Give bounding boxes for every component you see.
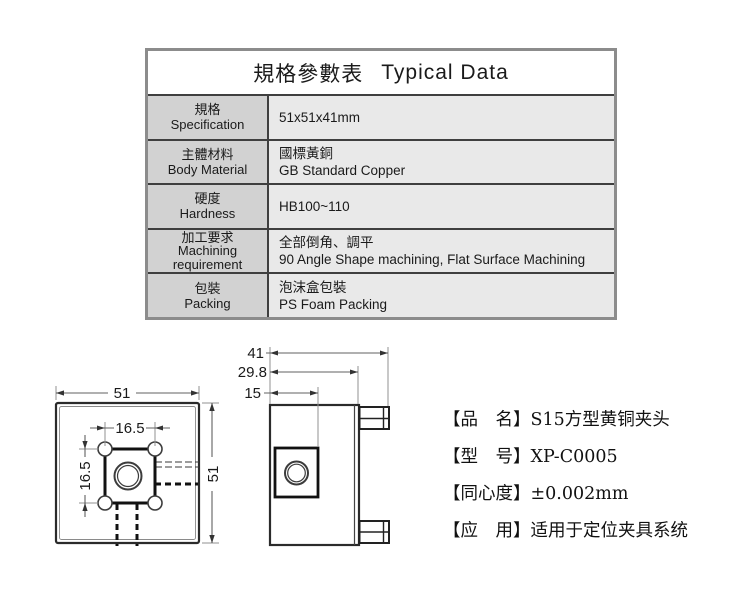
row-value: 泡沫盒包裝 PS Foam Packing bbox=[269, 274, 614, 317]
row-label: 主體材料 Body Material bbox=[148, 141, 269, 184]
row-value-line1: HB100~110 bbox=[279, 198, 614, 215]
row-label-en: Hardness bbox=[180, 206, 236, 221]
row-label-en: Packing bbox=[184, 296, 230, 311]
row-value-line2: GB Standard Copper bbox=[279, 162, 614, 179]
product-concentricity-line: 【同心度】±0.002mm bbox=[443, 480, 743, 502]
table-row-body-material: 主體材料 Body Material 國標黃銅 GB Standard Copp… bbox=[148, 141, 614, 186]
spec-table-title: 規格參數表 Typical Data bbox=[148, 51, 614, 96]
center-hole-outer bbox=[115, 463, 142, 490]
product-model-label: 【型 号】 bbox=[443, 447, 531, 467]
row-label-en: Machining requirement bbox=[154, 244, 261, 271]
front-width-dim-label: 51 bbox=[114, 385, 131, 402]
row-label-zh: 規格 bbox=[194, 102, 220, 117]
product-concentricity-value: ±0.002mm bbox=[531, 484, 629, 504]
row-value-line1: 國標黃銅 bbox=[279, 145, 614, 162]
row-label-zh: 主體材料 bbox=[181, 147, 233, 162]
side-hole-outer bbox=[285, 462, 308, 485]
product-model-line: 【型 号】XP-C0005 bbox=[443, 443, 743, 465]
product-name-value: S15方型黄铜夹头 bbox=[531, 410, 670, 430]
technical-drawing: 51 16.5 51 16.5 41 29.8 15 bbox=[30, 330, 450, 590]
table-row-hardness: 硬度 Hardness HB100~110 bbox=[148, 185, 614, 230]
row-label-en: Body Material bbox=[168, 162, 247, 177]
row-label-zh: 包裝 bbox=[194, 281, 220, 296]
side-body-width-dim-label: 29.8 bbox=[238, 364, 267, 381]
row-label-zh: 硬度 bbox=[194, 191, 220, 206]
row-value-line1: 51x51x41mm bbox=[279, 109, 614, 126]
spec-table: 規格參數表 Typical Data 規格 Specification 51x5… bbox=[145, 48, 617, 320]
side-dim-arrows bbox=[270, 351, 388, 396]
row-label-zh: 加工要求 bbox=[181, 231, 233, 245]
side-total-width-dim-label: 41 bbox=[247, 345, 264, 362]
table-row-packing: 包裝 Packing 泡沫盒包裝 PS Foam Packing bbox=[148, 274, 614, 317]
row-value: 全部倒角、調平 90 Angle Shape machining, Flat S… bbox=[269, 230, 614, 273]
product-name-line: 【品 名】S15方型黄铜夹头 bbox=[443, 406, 743, 428]
row-value: 國標黃銅 GB Standard Copper bbox=[269, 141, 614, 184]
table-row-specification: 規格 Specification 51x51x41mm bbox=[148, 96, 614, 141]
table-row-machining: 加工要求 Machining requirement 全部倒角、調平 90 An… bbox=[148, 230, 614, 275]
product-name-label: 【品 名】 bbox=[443, 410, 531, 430]
row-value: 51x51x41mm bbox=[269, 96, 614, 139]
product-application-value: 适用于定位夹具系统 bbox=[531, 521, 689, 541]
product-info-block: 【品 名】S15方型黄铜夹头 【型 号】XP-C0005 【同心度】±0.002… bbox=[443, 406, 743, 554]
product-application-label: 【应 用】 bbox=[443, 521, 531, 541]
row-value-line1: 泡沫盒包裝 bbox=[279, 279, 614, 296]
front-height-dim-label: 51 bbox=[205, 466, 222, 483]
row-label: 規格 Specification bbox=[148, 96, 269, 139]
pocket-width-dim-label: 16.5 bbox=[115, 420, 144, 437]
product-concentricity-label: 【同心度】 bbox=[443, 484, 531, 504]
pocket-height-dim-label: 16.5 bbox=[77, 461, 94, 490]
side-hole-offset-dim-label: 15 bbox=[244, 385, 261, 402]
datasheet-page: { "colors": { "table_outer_border": "#8c… bbox=[0, 0, 750, 600]
front-view: 51 16.5 51 16.5 bbox=[56, 385, 222, 546]
spec-table-title-en: Typical Data bbox=[381, 61, 509, 85]
row-value: HB100~110 bbox=[269, 185, 614, 228]
row-label: 加工要求 Machining requirement bbox=[148, 230, 269, 273]
row-label: 硬度 Hardness bbox=[148, 185, 269, 228]
product-model-value: XP-C0005 bbox=[531, 447, 618, 467]
side-view: 41 29.8 15 bbox=[238, 345, 389, 545]
product-application-line: 【应 用】适用于定位夹具系统 bbox=[443, 517, 743, 539]
row-value-line2: PS Foam Packing bbox=[279, 296, 614, 313]
row-value-line2: 90 Angle Shape machining, Flat Surface M… bbox=[279, 251, 614, 268]
row-value-line1: 全部倒角、調平 bbox=[279, 234, 614, 251]
row-label: 包裝 Packing bbox=[148, 274, 269, 317]
spec-table-title-zh: 規格參數表 bbox=[253, 58, 363, 88]
corner-relief-bottom-left bbox=[98, 496, 112, 510]
row-label-en: Specification bbox=[171, 117, 245, 132]
corner-relief-bottom-right bbox=[148, 496, 162, 510]
